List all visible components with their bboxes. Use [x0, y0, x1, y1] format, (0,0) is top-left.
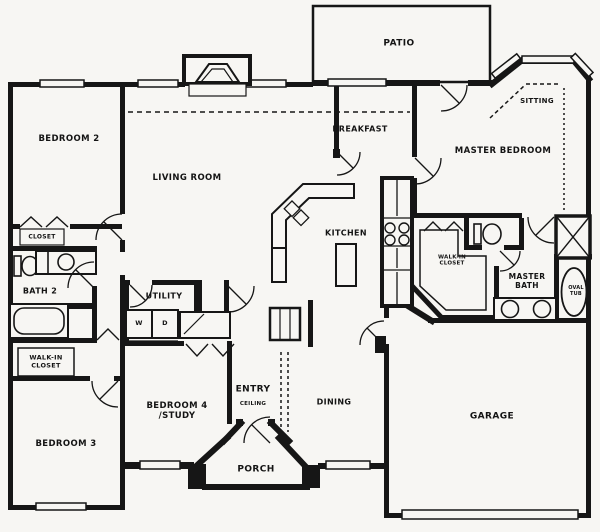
- door-swings: [68, 85, 554, 443]
- appliance-column: [382, 178, 412, 306]
- room-label-dryer: D: [162, 320, 168, 328]
- window: [522, 56, 574, 63]
- room-label-entry-ceiling: CEILING: [240, 401, 266, 407]
- room-label-walk-in-closet-left: WALK-IN CLOSET: [29, 354, 62, 369]
- door-swing-arc: [228, 286, 254, 312]
- door-swing-arc: [441, 85, 467, 111]
- window: [36, 503, 86, 510]
- master-suite-fixtures: [420, 216, 590, 320]
- entry-coat-closet: [270, 308, 300, 340]
- room-label-washer: W: [135, 320, 142, 328]
- room-label-oval-tub: OVAL TUB: [568, 286, 584, 298]
- room-label-bedroom-3: BEDROOM 3: [35, 439, 96, 449]
- sink-icon: [534, 301, 551, 318]
- bifold-door-mark: [46, 217, 68, 227]
- room-label-porch: PORCH: [237, 465, 274, 476]
- bathtub-icon: [10, 304, 68, 338]
- door-swing-arc: [244, 417, 270, 443]
- window: [326, 461, 370, 469]
- room-label-dining: DINING: [317, 397, 352, 406]
- toilet-icon: [474, 224, 501, 244]
- room-label-patio: PATIO: [383, 39, 414, 50]
- door-swing-arc: [528, 217, 554, 243]
- door-swing-arc: [360, 321, 384, 345]
- window: [140, 461, 180, 469]
- room-label-bath-2: BATH 2: [23, 286, 57, 295]
- room-label-bedroom-4-study: BEDROOM 4 /STUDY: [146, 401, 207, 421]
- bifold-door-mark: [20, 217, 42, 227]
- door-swing-arc: [415, 158, 441, 184]
- kitchen-sink-icon: [284, 201, 309, 226]
- door-swing-arc: [92, 381, 118, 407]
- kitchen-island: [336, 244, 356, 286]
- door-swing-arc: [500, 251, 520, 271]
- window: [138, 80, 178, 87]
- sitting-area-line: [490, 86, 524, 118]
- garage-door: [402, 510, 578, 519]
- master-vanity: [494, 298, 556, 320]
- room-label-kitchen: KITCHEN: [325, 228, 367, 237]
- door-swing-arc: [337, 152, 360, 175]
- shower-icon: [556, 216, 590, 258]
- bifold-door-mark: [97, 329, 119, 340]
- fireplace-icon: [184, 56, 250, 96]
- room-label-bedroom-2: BEDROOM 2: [38, 134, 99, 144]
- window: [40, 80, 84, 87]
- bifold-door-mark: [186, 344, 208, 356]
- room-label-utility: UTILITY: [146, 291, 183, 300]
- floor-plan: PATIOSITTINGBREAKFASTMASTER BEDROOMBEDRO…: [0, 0, 600, 532]
- room-label-master-walk-in-closet: WALK-IN CLOSET: [438, 255, 466, 268]
- room-label-entry: ENTRY: [236, 385, 271, 396]
- toilet-icon: [14, 256, 38, 276]
- room-label-master-bath: MASTER BATH: [509, 273, 546, 291]
- room-label-master-bedroom: MASTER BEDROOM: [455, 146, 551, 156]
- floor-plan-svg: [0, 0, 600, 532]
- room-label-closet-bedroom2: CLOSET: [28, 233, 55, 240]
- sink-icon: [502, 301, 519, 318]
- room-label-garage: GARAGE: [470, 412, 514, 423]
- window: [328, 79, 386, 86]
- room-label-breakfast: BREAKFAST: [332, 124, 387, 133]
- room-label-living-room: LIVING ROOM: [152, 173, 221, 183]
- utility-counter: [180, 312, 230, 338]
- room-label-sitting: SITTING: [520, 97, 554, 105]
